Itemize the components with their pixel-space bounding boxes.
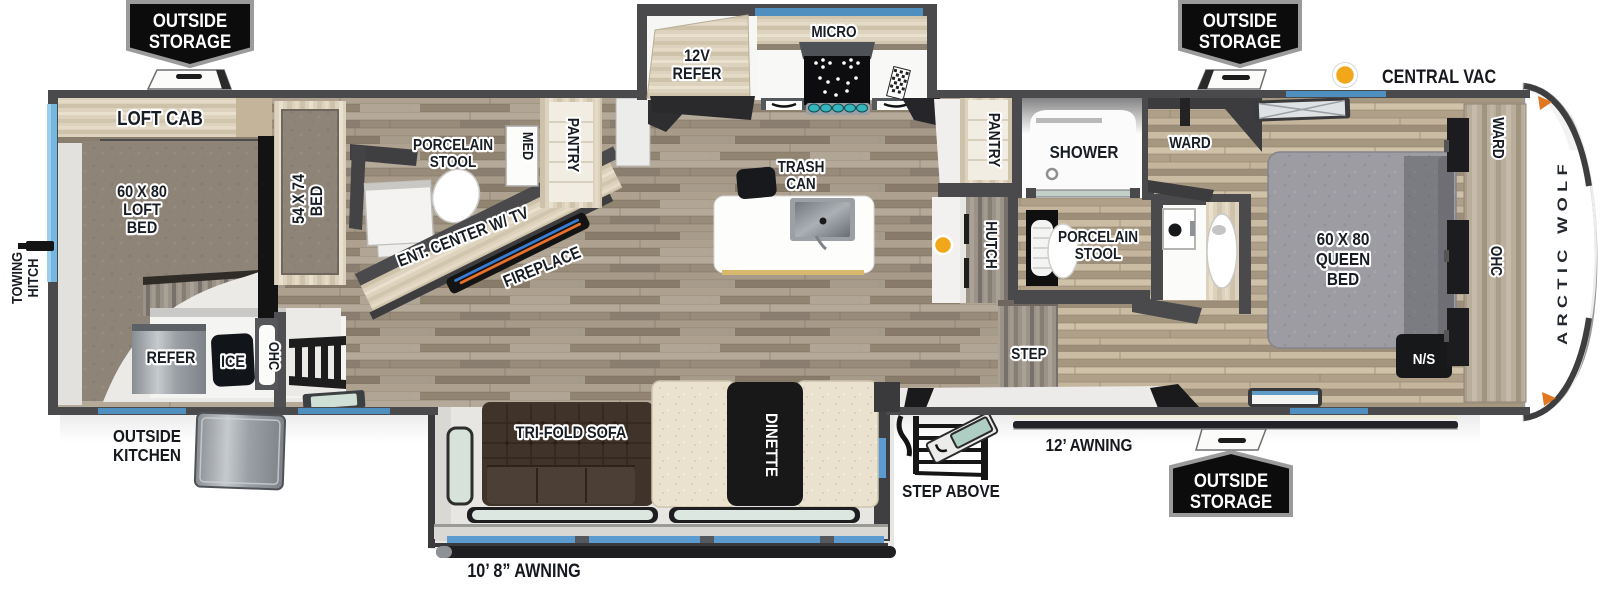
svg-text:BED: BED (308, 186, 326, 216)
svg-text:WARD: WARD (1169, 135, 1211, 152)
svg-text:TOWING: TOWING (8, 252, 25, 304)
svg-text:OUTSIDE: OUTSIDE (153, 10, 227, 31)
svg-text:OUTSIDE: OUTSIDE (113, 426, 181, 446)
svg-text:CENTRAL VAC: CENTRAL VAC (1382, 66, 1496, 88)
svg-text:TRASH: TRASH (778, 159, 825, 176)
svg-text:STEP: STEP (1011, 346, 1047, 363)
svg-text:OUTSIDE: OUTSIDE (1203, 10, 1277, 31)
svg-text:STORAGE: STORAGE (149, 31, 231, 52)
svg-text:PORCELAIN: PORCELAIN (413, 137, 493, 154)
svg-text:BED: BED (127, 219, 157, 237)
svg-text:LOFT CAB: LOFT CAB (117, 107, 203, 130)
svg-text:ICE: ICE (221, 353, 245, 371)
svg-text:LOFT: LOFT (123, 201, 161, 219)
svg-text:STOOL: STOOL (1075, 246, 1122, 263)
svg-text:WARD: WARD (1489, 117, 1506, 159)
svg-text:ARCTIC WOLF: ARCTIC WOLF (1555, 159, 1570, 345)
svg-text:MICRO: MICRO (811, 24, 856, 41)
svg-text:BED: BED (1327, 269, 1359, 289)
svg-text:N/S: N/S (1413, 351, 1435, 368)
svg-text:HITCH: HITCH (24, 259, 41, 298)
svg-text:OHC: OHC (1487, 246, 1504, 276)
svg-text:PANTRY: PANTRY (985, 113, 1002, 167)
svg-text:12V: 12V (684, 47, 710, 65)
svg-text:PORCELAIN: PORCELAIN (1058, 229, 1138, 246)
svg-text:QUEEN: QUEEN (1316, 249, 1370, 269)
svg-text:REFER: REFER (673, 65, 723, 83)
svg-text:60 X 80: 60 X 80 (1317, 229, 1370, 249)
svg-text:MED: MED (520, 132, 537, 160)
svg-text:OUTSIDE: OUTSIDE (1194, 470, 1268, 491)
svg-text:12’ AWNING: 12’ AWNING (1046, 435, 1133, 455)
svg-text:CAN: CAN (786, 176, 815, 193)
svg-text:STOOL: STOOL (430, 154, 477, 171)
svg-text:STORAGE: STORAGE (1199, 31, 1281, 52)
svg-text:10’ 8” AWNING: 10’ 8” AWNING (467, 560, 580, 582)
svg-text:60 X 80: 60 X 80 (117, 183, 167, 201)
svg-text:STORAGE: STORAGE (1190, 491, 1272, 512)
svg-text:OHC: OHC (266, 342, 283, 370)
svg-text:STEP ABOVE: STEP ABOVE (902, 481, 1000, 501)
svg-text:PANTRY: PANTRY (564, 118, 581, 172)
svg-text:TRI-FOLD SOFA: TRI-FOLD SOFA (516, 424, 627, 442)
svg-text:DINETTE: DINETTE (762, 413, 780, 477)
svg-text:REFER: REFER (147, 349, 197, 367)
svg-text:54 X 74: 54 X 74 (290, 174, 308, 224)
svg-text:HUTCH: HUTCH (982, 221, 999, 269)
svg-text:SHOWER: SHOWER (1050, 142, 1119, 162)
svg-text:KITCHEN: KITCHEN (113, 445, 181, 465)
